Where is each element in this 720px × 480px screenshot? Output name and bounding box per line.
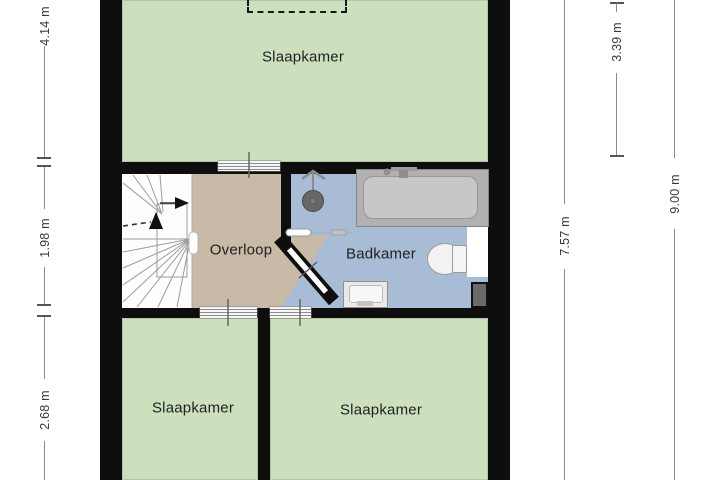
door-opening-bedroom-left [200,307,257,318]
room-label-bathroom: Badkamer [346,246,416,263]
dimension-label: 4.14 m [38,6,52,45]
dormer-outline [247,0,347,13]
bathtub [356,169,489,227]
door-opening-bedroom-right [270,307,311,318]
toilet-tank [452,245,467,273]
stairwell [122,174,192,308]
dim-tick [610,2,624,4]
dimension-label: 7.57 m [558,216,572,255]
duct-block [471,282,488,308]
dim-line [564,0,565,204]
floor-plan: 4.14 m 1.98 m 2.68 m 7.57 m 3.39 m 9.00 … [0,0,720,480]
wall-niche [467,227,488,277]
dim-line [564,269,565,480]
dimension-label: 9.00 m [668,174,682,213]
landing-corner-floor [281,236,328,308]
room-label-bedroom-right: Slaapkamer [340,402,422,419]
room-label-bedroom-top: Slaapkamer [262,49,344,66]
sink [343,281,388,308]
room-label-bedroom-left: Slaapkamer [152,400,234,417]
dim-line [44,46,45,158]
dim-line [44,441,45,480]
bathroom-left-wall [281,162,291,243]
dim-tick [37,304,51,306]
bathtub-basin [363,176,478,219]
room-bedroom-right [270,318,488,480]
sink-tap [357,301,373,306]
dim-line [44,167,45,209]
door-opening-bedroom-top [218,161,280,171]
dimension-label: 2.68 m [38,390,52,429]
dimension-label: 1.98 m [38,218,52,257]
dim-tick [610,155,624,157]
dim-line [44,267,45,305]
dimension-label: 3.39 m [610,22,624,61]
dim-line [616,73,617,156]
dim-line [674,0,675,158]
dim-line [616,3,617,12]
room-bedroom-top [122,0,488,162]
dim-line [674,229,675,480]
dim-tick [37,157,51,159]
dim-line [44,317,45,379]
room-label-landing: Overloop [210,242,272,259]
